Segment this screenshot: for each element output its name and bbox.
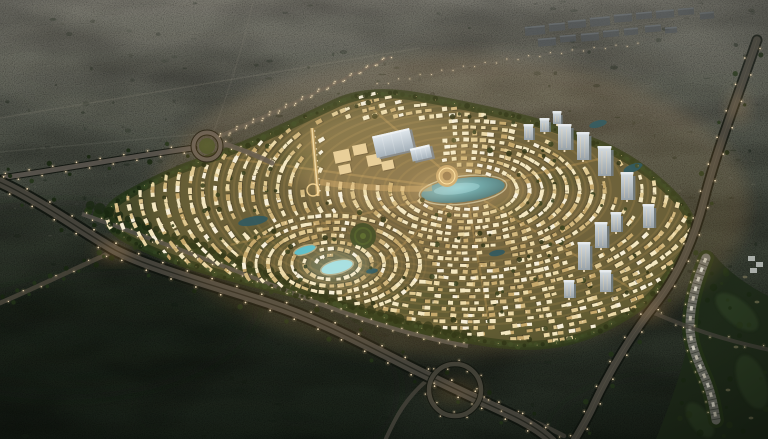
vignette: [0, 0, 768, 439]
aerial-render: Dusk aerial render of a circular master-…: [0, 0, 768, 439]
aerial-render-canvas: Dusk aerial render of a circular master-…: [0, 0, 768, 439]
